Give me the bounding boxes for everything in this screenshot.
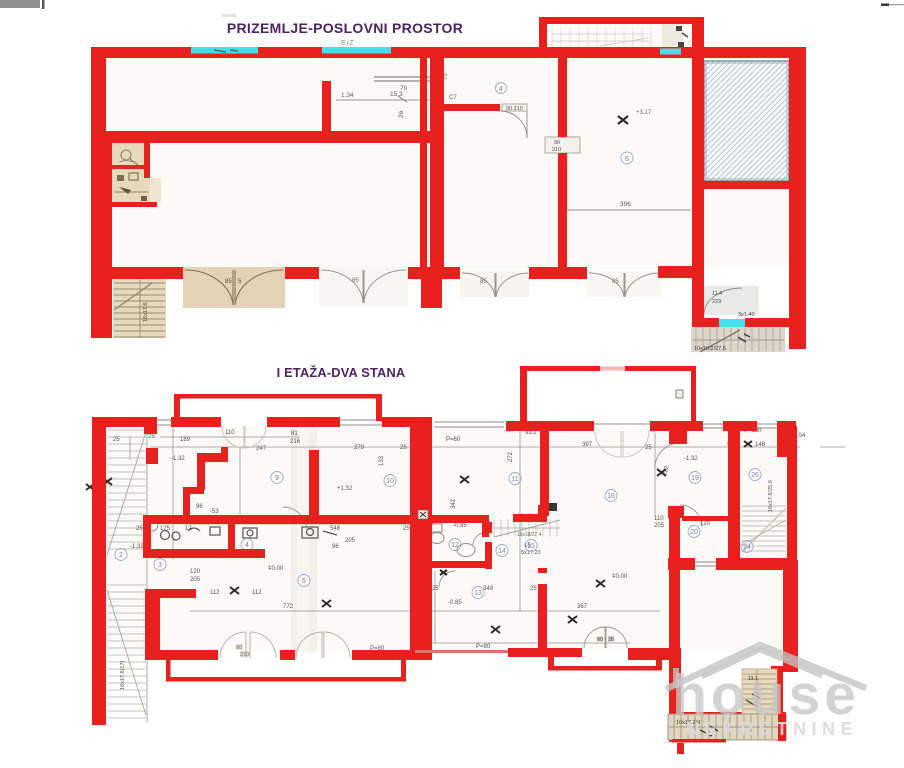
svg-text:6: 6 [625,156,629,163]
svg-text:349: 349 [483,586,494,592]
svg-text:247: 247 [256,446,267,452]
svg-text:25: 25 [432,586,439,592]
svg-text:11x18/27.4: 11x18/27.4 [517,532,542,538]
svg-text:P=60: P=60 [446,437,461,443]
svg-text:-1.32: -1.32 [130,544,144,550]
svg-text:PRIZEMLJE-POSLOVNI PROSTOR: PRIZEMLJE-POSLOVNI PROSTOR [227,20,463,36]
svg-text:85: 85 [480,279,487,285]
svg-text:133: 133 [379,455,385,466]
svg-text:90: 90 [554,140,560,146]
svg-text:5: 5 [302,578,306,585]
svg-text:19: 19 [691,475,699,482]
svg-text:2: 2 [119,552,123,559]
svg-text:148: 148 [755,442,766,448]
svg-text:16: 16 [607,493,615,500]
svg-text:112: 112 [252,590,262,596]
svg-text:NEKRETNINE: NEKRETNINE [686,719,858,739]
svg-text:25: 25 [645,445,652,451]
svg-text:80: 80 [236,645,242,651]
svg-text:9: 9 [275,475,279,482]
svg-text:90 210: 90 210 [506,106,523,112]
svg-text:16x17.6: 16x17.6 [143,302,149,322]
svg-text:20: 20 [690,529,698,536]
svg-text:85: 85 [352,278,359,284]
svg-text:24: 24 [743,544,751,551]
svg-text:5x17.23: 5x17.23 [521,550,541,556]
svg-text:397: 397 [582,442,593,448]
svg-text:4: 4 [245,542,249,549]
svg-text:25: 25 [113,437,120,443]
svg-text:10: 10 [386,478,394,485]
svg-text:11.4: 11.4 [712,291,722,297]
svg-text:548: 548 [330,526,341,532]
svg-text:+1.32: +1.32 [337,486,353,492]
svg-text:205: 205 [654,523,665,529]
svg-text:189: 189 [180,437,191,443]
svg-text:205: 205 [345,538,356,544]
svg-text:26: 26 [398,110,405,118]
svg-text:342: 342 [451,498,457,509]
svg-text:85: 85 [612,279,619,285]
svg-text:I ETAŽA-DVA STANA: I ETAŽA-DVA STANA [277,365,406,380]
svg-text:25: 25 [148,434,155,440]
svg-text:210: 210 [552,147,561,153]
svg-text:26: 26 [751,472,759,479]
svg-text:81: 81 [291,431,298,437]
svg-text:279: 279 [354,445,365,451]
svg-text:272: 272 [508,451,514,462]
svg-text:4: 4 [499,86,503,93]
svg-text:C7: C7 [449,95,457,101]
svg-text:13: 13 [474,590,482,597]
svg-text:110: 110 [225,430,235,436]
svg-text:15: 15 [527,543,535,550]
svg-text:25: 25 [400,445,407,451]
svg-text:P=80: P=80 [476,644,491,650]
svg-text:70: 70 [400,85,408,92]
svg-text:house: house [672,663,860,727]
svg-text:3: 3 [158,562,162,569]
svg-text:ǂ0.00: ǂ0.00 [612,574,628,580]
svg-text:25: 25 [136,526,143,532]
svg-text:96: 96 [196,504,203,510]
svg-text:12: 12 [185,526,192,532]
svg-text:85: 85 [225,279,232,285]
svg-text:1.34: 1.34 [341,92,354,99]
svg-text:15.3: 15.3 [390,91,403,98]
svg-text:396: 396 [620,201,631,208]
svg-text:-0.85: -0.85 [453,523,467,529]
svg-text:96: 96 [332,544,339,550]
svg-text:-53: -53 [210,509,219,515]
svg-text:25: 25 [403,526,410,532]
svg-text:16x17.6(17): 16x17.6(17) [120,660,126,690]
svg-text:120: 120 [190,569,201,575]
svg-text:110: 110 [654,516,664,522]
svg-text:25: 25 [608,637,614,643]
svg-text:12: 12 [451,542,459,549]
svg-text:229: 229 [712,299,721,305]
svg-text:205: 205 [190,577,201,583]
svg-text:175: 175 [160,526,171,532]
svg-text:367: 367 [577,604,588,610]
svg-text:10x16.2/27.5: 10x16.2/27.5 [694,346,726,352]
svg-text:EiZ: EiZ [341,40,355,47]
svg-text:3x1.40: 3x1.40 [738,312,755,318]
svg-text:-0.85: -0.85 [448,600,462,606]
svg-text:112: 112 [210,590,220,596]
svg-text:210: 210 [240,652,249,658]
svg-text:ǂ0.00: ǂ0.00 [268,566,284,572]
svg-text:16x17.6/25.9: 16x17.6/25.9 [768,480,774,512]
svg-text:-1.32: -1.32 [171,456,185,462]
svg-text:+3.17: +3.17 [636,110,652,116]
svg-text:120: 120 [700,521,711,527]
svg-text:25: 25 [530,586,537,592]
svg-text:14: 14 [498,548,506,555]
svg-text:11: 11 [511,476,518,483]
svg-text:772: 772 [283,604,294,610]
svg-text:-1.32: -1.32 [684,456,698,462]
svg-text:216: 216 [290,439,301,445]
svg-text:90: 90 [597,637,603,643]
